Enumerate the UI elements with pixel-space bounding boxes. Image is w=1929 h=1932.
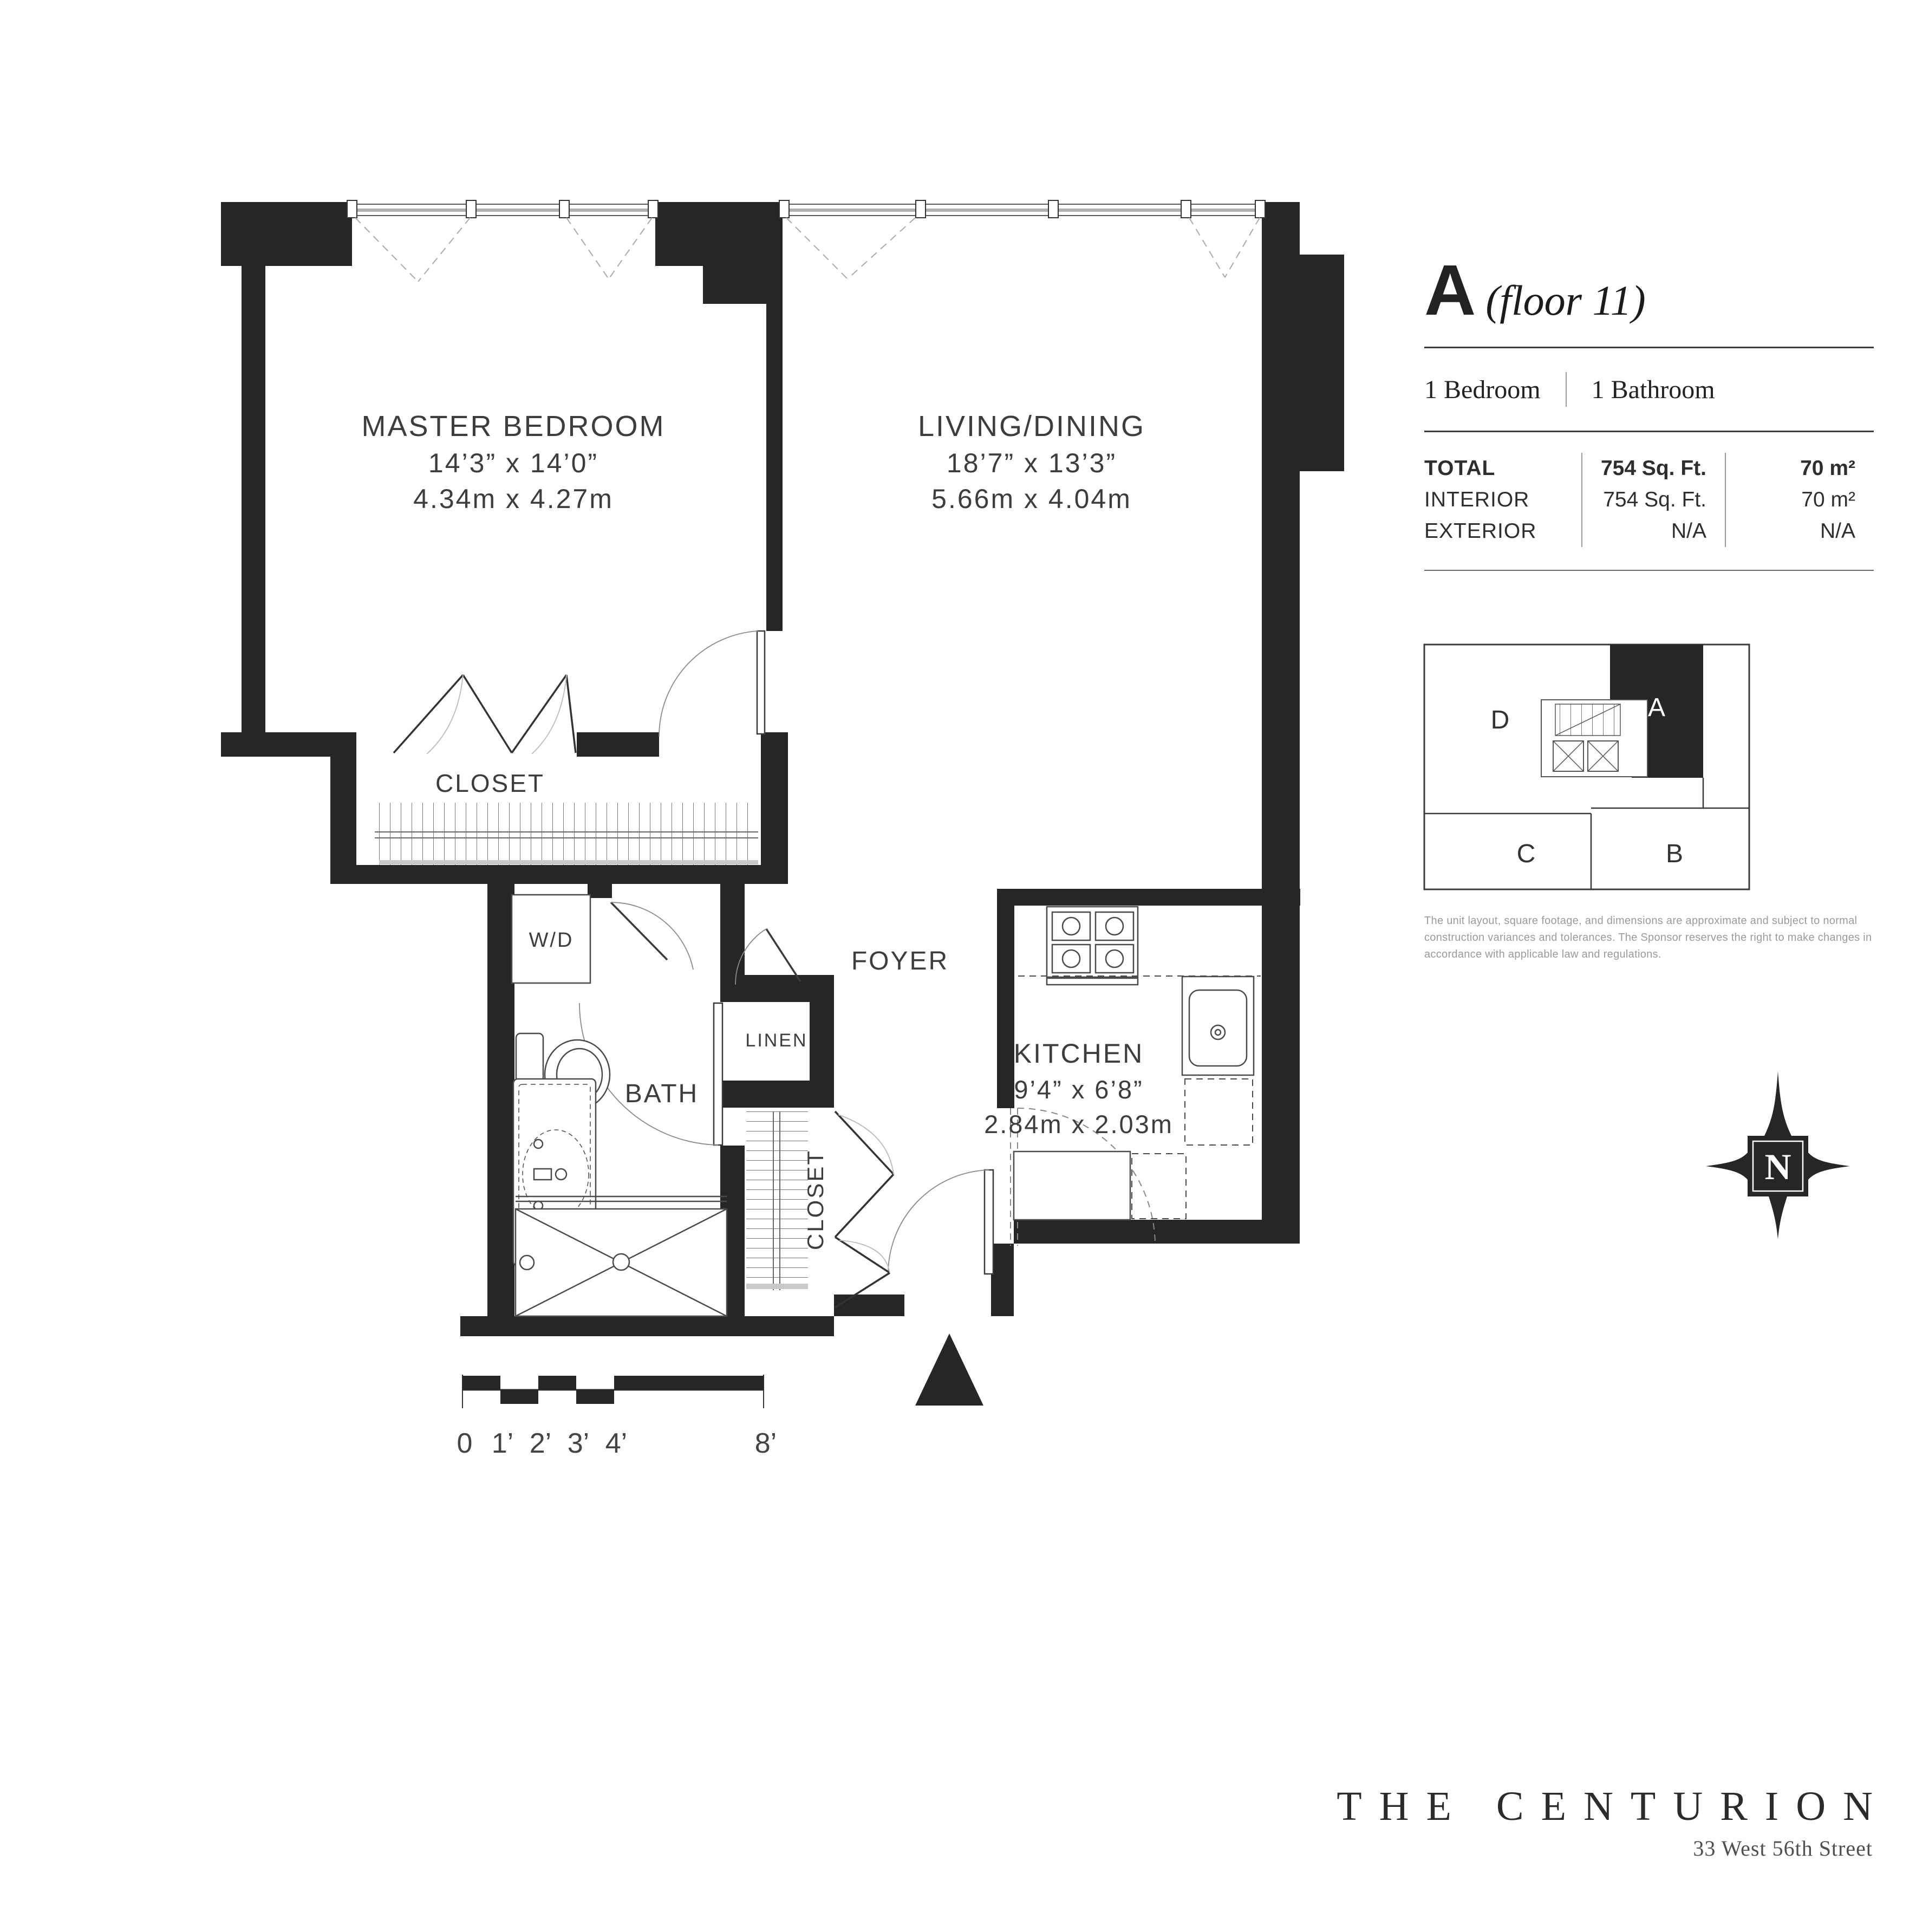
kitchen-dim-m: 2.84m x 2.03m <box>984 1110 1174 1139</box>
brand-name: THE CENTURION <box>1337 1783 1890 1830</box>
window-band <box>347 200 1265 282</box>
living-dining-dim-ft: 18’7” x 13’3” <box>947 448 1117 478</box>
bedroom-closet-label: CLOSET <box>435 769 545 797</box>
living-dining-dim-m: 5.66m x 4.04m <box>931 484 1132 514</box>
bedroom-door <box>659 631 765 737</box>
keyplan: D A C B <box>1424 645 1749 889</box>
bedroom-closet-hatch <box>375 803 758 865</box>
compass-n-label: N <box>1764 1146 1791 1187</box>
living-dining-label: LIVING/DINING <box>918 410 1145 443</box>
keyplan-unit-b: B <box>1666 840 1683 868</box>
foyer-closet-bifold <box>835 1111 894 1307</box>
master-bedroom-dim-m: 4.34m x 4.27m <box>413 484 614 514</box>
scale-3ft: 3’ <box>568 1428 589 1459</box>
scale-2ft: 2’ <box>530 1428 551 1459</box>
unit-letter: A <box>1424 255 1476 326</box>
bathrooms-label: 1 Bathroom <box>1592 375 1715 405</box>
linen-label: LINEN <box>745 1030 807 1051</box>
kitchen-island-counter <box>1014 1152 1130 1220</box>
disclaimer-text: The unit layout, square footage, and dim… <box>1424 913 1874 963</box>
brand-address: 33 West 56th Street <box>1337 1836 1873 1861</box>
keyplan-unit-a: A <box>1648 693 1665 722</box>
shower-icon <box>516 1196 727 1316</box>
unit-title: A (floor 11) <box>1424 255 1874 347</box>
kitchen-dim-ft: 9’4” x 6’8” <box>1014 1075 1143 1104</box>
divider-rule-bottom <box>1424 570 1874 571</box>
bath-label: BATH <box>625 1079 699 1108</box>
row-total-sqm: 70 m² <box>1725 453 1874 484</box>
master-bedroom-dim-ft: 14’3” x 14’0” <box>428 448 598 478</box>
scale-4ft: 4’ <box>605 1428 627 1459</box>
row-exterior-label: EXTERIOR <box>1424 516 1581 547</box>
foyer-closet-hatch <box>746 1111 808 1290</box>
kitchen-sink-icon <box>1182 977 1254 1075</box>
wd-door <box>611 902 693 970</box>
row-total-sqft: 754 Sq. Ft. <box>1581 453 1725 484</box>
keyplan-unit-d: D <box>1491 706 1510 734</box>
row-interior-sqm: 70 m² <box>1725 484 1874 516</box>
floor-label: (floor 11) <box>1485 276 1645 325</box>
row-exterior-sqft: N/A <box>1581 516 1725 547</box>
keyplan-core <box>1541 700 1647 777</box>
bedrooms-label: 1 Bedroom <box>1424 375 1541 405</box>
footer: THE CENTURION 33 West 56th Street <box>1337 1783 1873 1861</box>
area-table: TOTAL 754 Sq. Ft. 70 m² INTERIOR 754 Sq.… <box>1424 432 1874 570</box>
stove-icon <box>1047 907 1138 985</box>
floorplan-page: 0 1’ 2’ 3’ 4’ 8’ MASTER BEDROOM 14’3” x … <box>0 0 1929 1929</box>
keyplan-unit-c: C <box>1517 840 1536 868</box>
row-total-label: TOTAL <box>1424 453 1581 484</box>
master-bedroom-label: MASTER BEDROOM <box>361 410 665 443</box>
casement-swings <box>355 218 1260 282</box>
compass-icon: N <box>1706 1071 1850 1239</box>
row-interior-sqft: 754 Sq. Ft. <box>1581 484 1725 516</box>
scale-0: 0 <box>457 1428 473 1459</box>
wd-label: W/D <box>529 929 574 952</box>
scale-1ft: 1’ <box>492 1428 513 1459</box>
entry-door <box>888 1170 993 1274</box>
bedroom-closet-bifold <box>394 675 576 754</box>
bed-bath-row: 1 Bedroom 1 Bathroom <box>1424 348 1874 431</box>
row-exterior-sqm: N/A <box>1725 516 1874 547</box>
kitchen-label: KITCHEN <box>1014 1038 1144 1069</box>
bed-bath-divider <box>1566 372 1567 407</box>
entry-arrow <box>915 1333 983 1406</box>
scale-8ft: 8’ <box>755 1428 777 1459</box>
foyer-closet-label: CLOSET <box>803 1149 828 1250</box>
scale-bar: 0 1’ 2’ 3’ 4’ 8’ <box>457 1375 777 1459</box>
row-interior-label: INTERIOR <box>1424 484 1581 516</box>
foyer-label: FOYER <box>851 947 949 975</box>
info-panel: A (floor 11) 1 Bedroom 1 Bathroom TOTAL … <box>1424 255 1874 571</box>
